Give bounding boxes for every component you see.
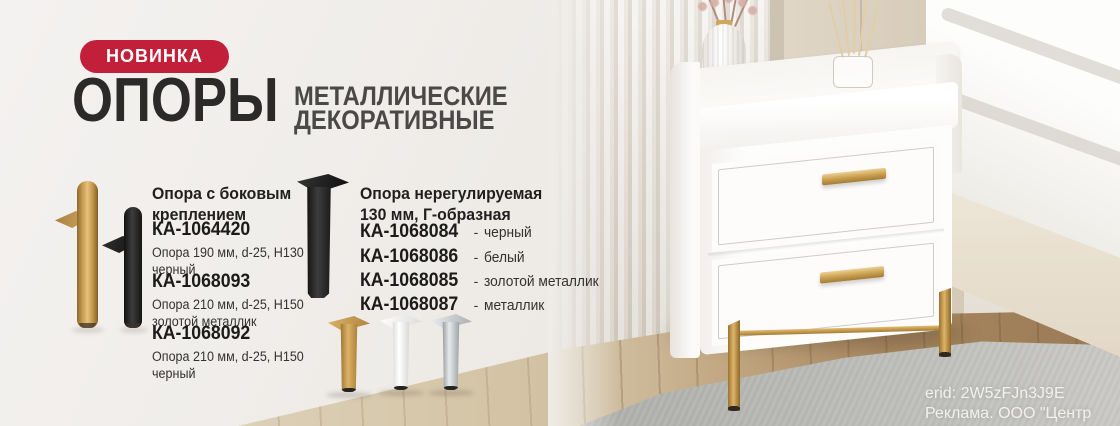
advertiser-label: Реклама. ООО "Центр КДМ": [925, 404, 1120, 426]
product-color: белый: [484, 250, 525, 266]
leg-shadow: [428, 390, 474, 396]
l-leg-image: [305, 187, 333, 298]
product-color: золотой металлик: [484, 274, 599, 290]
separator: -: [474, 297, 479, 313]
bedroom-photo: [548, 0, 1120, 426]
product-code: КА-1068092: [152, 323, 319, 345]
mini-white-leg-image: [380, 314, 424, 398]
product-item: КА-1068085 - золотой металлик: [360, 270, 605, 292]
nightstand-right-leg: [939, 288, 951, 357]
l-leg-bar: [442, 322, 460, 390]
product-code: КА-1068084: [360, 221, 458, 243]
subtitle-line-2: ДЕКОРАТИВНЫЕ: [294, 108, 508, 132]
nightstand-drawers: [700, 125, 952, 355]
mini-silver-leg-image: [430, 314, 474, 398]
product-color: металлик: [484, 298, 544, 314]
product-item: КА-1068084 - черный: [360, 221, 535, 243]
flower-blossom: [748, 6, 757, 15]
product-code: КА-1068086: [360, 246, 458, 268]
erid-label: erid: 2W5zFJn3J9E: [925, 384, 1120, 404]
product-item: КА-1068092 Опора 210 мм, d-25, H150 черн…: [152, 323, 332, 382]
leg-shadow: [120, 327, 148, 333]
product-code: КА-1068085: [360, 270, 458, 292]
product-item: КА-1068086 - белый: [360, 246, 527, 268]
leg-shadow: [72, 327, 104, 333]
leg-shadow: [378, 390, 424, 396]
l-leg-bar: [392, 322, 410, 390]
separator: -: [474, 224, 479, 240]
product-item: КА-1068093 Опора 210 мм, d-25, H150 золо…: [152, 271, 332, 330]
separator: -: [474, 273, 479, 289]
product-code: КА-1064420: [152, 219, 319, 241]
page-title: ОПОРЫ: [72, 70, 279, 132]
nightstand-front-leg: [728, 320, 740, 411]
separator: -: [474, 249, 479, 265]
product-code: КА-1068093: [152, 271, 319, 293]
duvet-fold: [940, 6, 1120, 87]
diffuser-bottle: [833, 56, 873, 88]
photo-fade: [548, 0, 618, 426]
subtitle: МЕТАЛЛИЧЕСКИЕ ДЕКОРАТИВНЫЕ: [294, 84, 508, 132]
l-leg-bar: [340, 324, 358, 392]
group2-heading: Опора нерегулируемая 130 мм, Г-образная: [360, 183, 551, 225]
product-code: КА-1068087: [360, 294, 458, 316]
product-color: черный: [484, 225, 532, 241]
product-item: КА-1068087 - металлик: [360, 294, 548, 316]
product-item: КА-1064420 Опора 190 мм, d-25, H130 черн…: [152, 219, 332, 278]
mini-gold-leg-image: [328, 316, 372, 400]
leg-shadow: [326, 392, 372, 398]
nightstand-left-panel: [670, 62, 700, 358]
ad-banner[interactable]: НОВИНКА ОПОРЫ МЕТАЛЛИЧЕСКИЕ ДЕКОРАТИВНЫЕ…: [0, 0, 1120, 426]
black-leg-image: [124, 207, 142, 328]
legal-block: erid: 2W5zFJn3J9E Реклама. ООО "Центр КД…: [925, 384, 1120, 426]
product-desc: Опора 210 мм, d-25, H150 черный: [152, 348, 319, 382]
gold-leg-image: [77, 181, 98, 328]
flower-blossom: [698, 2, 707, 11]
